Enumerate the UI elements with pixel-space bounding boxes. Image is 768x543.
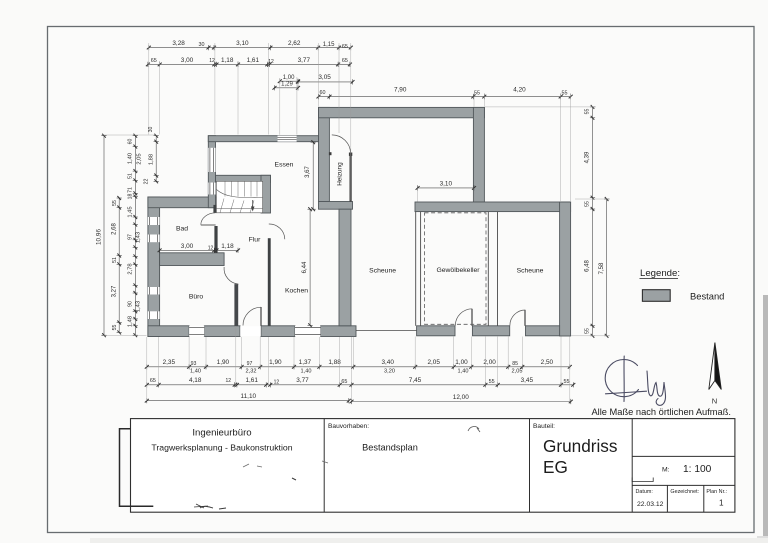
svg-text:1,37: 1,37 — [299, 359, 312, 366]
svg-text:1,40: 1,40 — [128, 153, 134, 164]
svg-text:Ingenieurbüro: Ingenieurbüro — [192, 428, 251, 439]
svg-text:Bauteil:: Bauteil: — [533, 423, 555, 430]
svg-text:4,39: 4,39 — [585, 151, 591, 163]
svg-text:71: 71 — [128, 187, 134, 193]
svg-text:1,40: 1,40 — [301, 369, 312, 375]
svg-text:51: 51 — [112, 257, 118, 263]
svg-text:6,48: 6,48 — [585, 260, 591, 272]
svg-text:EG: EG — [543, 457, 568, 477]
svg-text:1,15: 1,15 — [323, 42, 335, 48]
svg-text:1,40: 1,40 — [190, 369, 201, 375]
svg-text:1,48: 1,48 — [128, 316, 134, 327]
svg-text:55: 55 — [562, 90, 568, 96]
svg-text:2,50: 2,50 — [541, 359, 554, 366]
svg-text:65: 65 — [150, 378, 156, 384]
svg-text:2,78: 2,78 — [128, 263, 134, 274]
svg-text:3,20: 3,20 — [384, 369, 395, 375]
svg-text:1,00: 1,00 — [283, 75, 295, 81]
svg-text:1,00: 1,00 — [455, 359, 468, 366]
svg-text:3,77: 3,77 — [298, 57, 311, 64]
svg-text:55: 55 — [489, 379, 495, 385]
svg-text:7,90: 7,90 — [394, 87, 407, 94]
svg-text:65: 65 — [342, 58, 348, 64]
svg-text:3,10: 3,10 — [440, 180, 453, 187]
svg-text:55: 55 — [585, 109, 591, 115]
svg-text:65: 65 — [342, 44, 348, 50]
svg-text:1,18: 1,18 — [221, 243, 234, 250]
svg-text:1,40: 1,40 — [458, 369, 469, 375]
svg-text:22: 22 — [144, 179, 150, 185]
svg-text:97: 97 — [247, 361, 253, 367]
svg-text:1,29: 1,29 — [281, 82, 293, 88]
svg-text:2,05: 2,05 — [512, 369, 523, 375]
svg-text:Legende:: Legende: — [640, 268, 680, 279]
svg-text:12: 12 — [209, 58, 215, 64]
svg-text:60: 60 — [128, 139, 134, 145]
svg-text:1,18: 1,18 — [221, 57, 234, 64]
svg-text:12: 12 — [274, 380, 280, 386]
svg-text:1,88: 1,88 — [328, 359, 341, 366]
svg-text:Scheune: Scheune — [517, 268, 544, 275]
svg-text:2,68: 2,68 — [112, 223, 118, 235]
svg-text:3,45: 3,45 — [521, 377, 534, 384]
svg-text:12: 12 — [226, 378, 232, 384]
svg-text:1,90: 1,90 — [269, 359, 282, 366]
svg-text:Datum:: Datum: — [636, 489, 653, 495]
svg-text:90: 90 — [128, 301, 134, 307]
svg-text:Büro: Büro — [189, 294, 204, 301]
svg-text:7,45: 7,45 — [409, 377, 422, 384]
svg-text:2,35: 2,35 — [163, 359, 176, 366]
svg-text:2,05: 2,05 — [137, 153, 143, 164]
svg-text:2,05: 2,05 — [427, 359, 440, 366]
svg-text:3,77: 3,77 — [296, 377, 309, 384]
svg-text:93: 93 — [191, 361, 197, 367]
svg-text:1,45: 1,45 — [128, 206, 134, 217]
svg-text:30: 30 — [199, 42, 205, 48]
svg-text:Alle Maße nach örtlichen Aufma: Alle Maße nach örtlichen Aufmaß. — [591, 407, 731, 417]
svg-text:Plan Nr.:: Plan Nr.: — [706, 489, 727, 495]
svg-text:3,27: 3,27 — [112, 285, 118, 297]
svg-text:10,96: 10,96 — [96, 229, 103, 245]
svg-text:Flur: Flur — [249, 236, 261, 243]
svg-text:55: 55 — [474, 90, 480, 96]
svg-text:65: 65 — [341, 379, 347, 385]
svg-text:2,62: 2,62 — [288, 40, 301, 47]
svg-text:Bestand: Bestand — [690, 290, 724, 301]
svg-text:4,18: 4,18 — [189, 377, 202, 384]
svg-text:Gewölbekeller: Gewölbekeller — [436, 267, 480, 274]
svg-text:51: 51 — [128, 173, 134, 179]
svg-text:30: 30 — [148, 127, 154, 133]
svg-text:85: 85 — [512, 361, 518, 367]
svg-text:Tragwerksplanung - Baukonstruk: Tragwerksplanung - Baukonstruktion — [151, 443, 292, 453]
svg-text:12,00: 12,00 — [453, 394, 469, 401]
svg-text:55: 55 — [585, 328, 591, 334]
svg-text:Gezeichnet:: Gezeichnet: — [670, 489, 699, 495]
svg-text:1,61: 1,61 — [245, 377, 258, 384]
svg-text:3,40: 3,40 — [381, 359, 394, 366]
svg-text:4,20: 4,20 — [513, 87, 526, 94]
svg-text:1,90: 1,90 — [217, 359, 230, 366]
svg-text:Kochen: Kochen — [285, 287, 308, 294]
svg-text:M:: M: — [662, 467, 670, 474]
svg-text:7,58: 7,58 — [599, 262, 605, 274]
svg-text:Bad: Bad — [176, 226, 188, 233]
svg-text:Heizung: Heizung — [337, 162, 344, 186]
svg-text:55: 55 — [564, 379, 570, 385]
svg-text:1,43: 1,43 — [136, 301, 142, 312]
svg-text:N: N — [712, 397, 717, 406]
svg-text:11,10: 11,10 — [241, 393, 257, 400]
svg-text:65: 65 — [151, 58, 157, 64]
svg-text:2,32: 2,32 — [246, 369, 257, 375]
svg-text:12: 12 — [268, 59, 274, 65]
svg-text:3,00: 3,00 — [181, 243, 194, 250]
svg-text:Scheune: Scheune — [369, 268, 396, 275]
svg-text:6,44: 6,44 — [302, 261, 308, 273]
svg-text:18: 18 — [128, 194, 134, 200]
svg-text:Grundriss: Grundriss — [543, 436, 618, 456]
svg-text:1: 1 — [719, 499, 724, 508]
svg-text:1: 100: 1: 100 — [683, 464, 712, 475]
svg-text:1,61: 1,61 — [247, 57, 260, 64]
svg-text:1,88: 1,88 — [149, 154, 155, 165]
svg-text:22.03.12: 22.03.12 — [637, 501, 664, 508]
svg-text:3,00: 3,00 — [181, 57, 194, 64]
svg-text:3,05: 3,05 — [318, 74, 331, 81]
svg-text:Essen: Essen — [275, 162, 294, 169]
svg-text:Bauvorhaben:: Bauvorhaben: — [328, 423, 369, 430]
svg-text:3,28: 3,28 — [172, 40, 185, 47]
svg-text:60: 60 — [320, 90, 326, 96]
svg-text:3,10: 3,10 — [236, 40, 249, 47]
svg-text:55: 55 — [112, 200, 118, 206]
svg-text:12: 12 — [208, 246, 214, 252]
svg-text:1,43: 1,43 — [136, 232, 142, 243]
svg-text:3,67: 3,67 — [305, 166, 311, 178]
svg-text:55: 55 — [112, 325, 118, 331]
svg-text:97: 97 — [128, 234, 134, 240]
svg-text:55: 55 — [585, 201, 591, 207]
svg-text:Bestandsplan: Bestandsplan — [362, 443, 418, 453]
